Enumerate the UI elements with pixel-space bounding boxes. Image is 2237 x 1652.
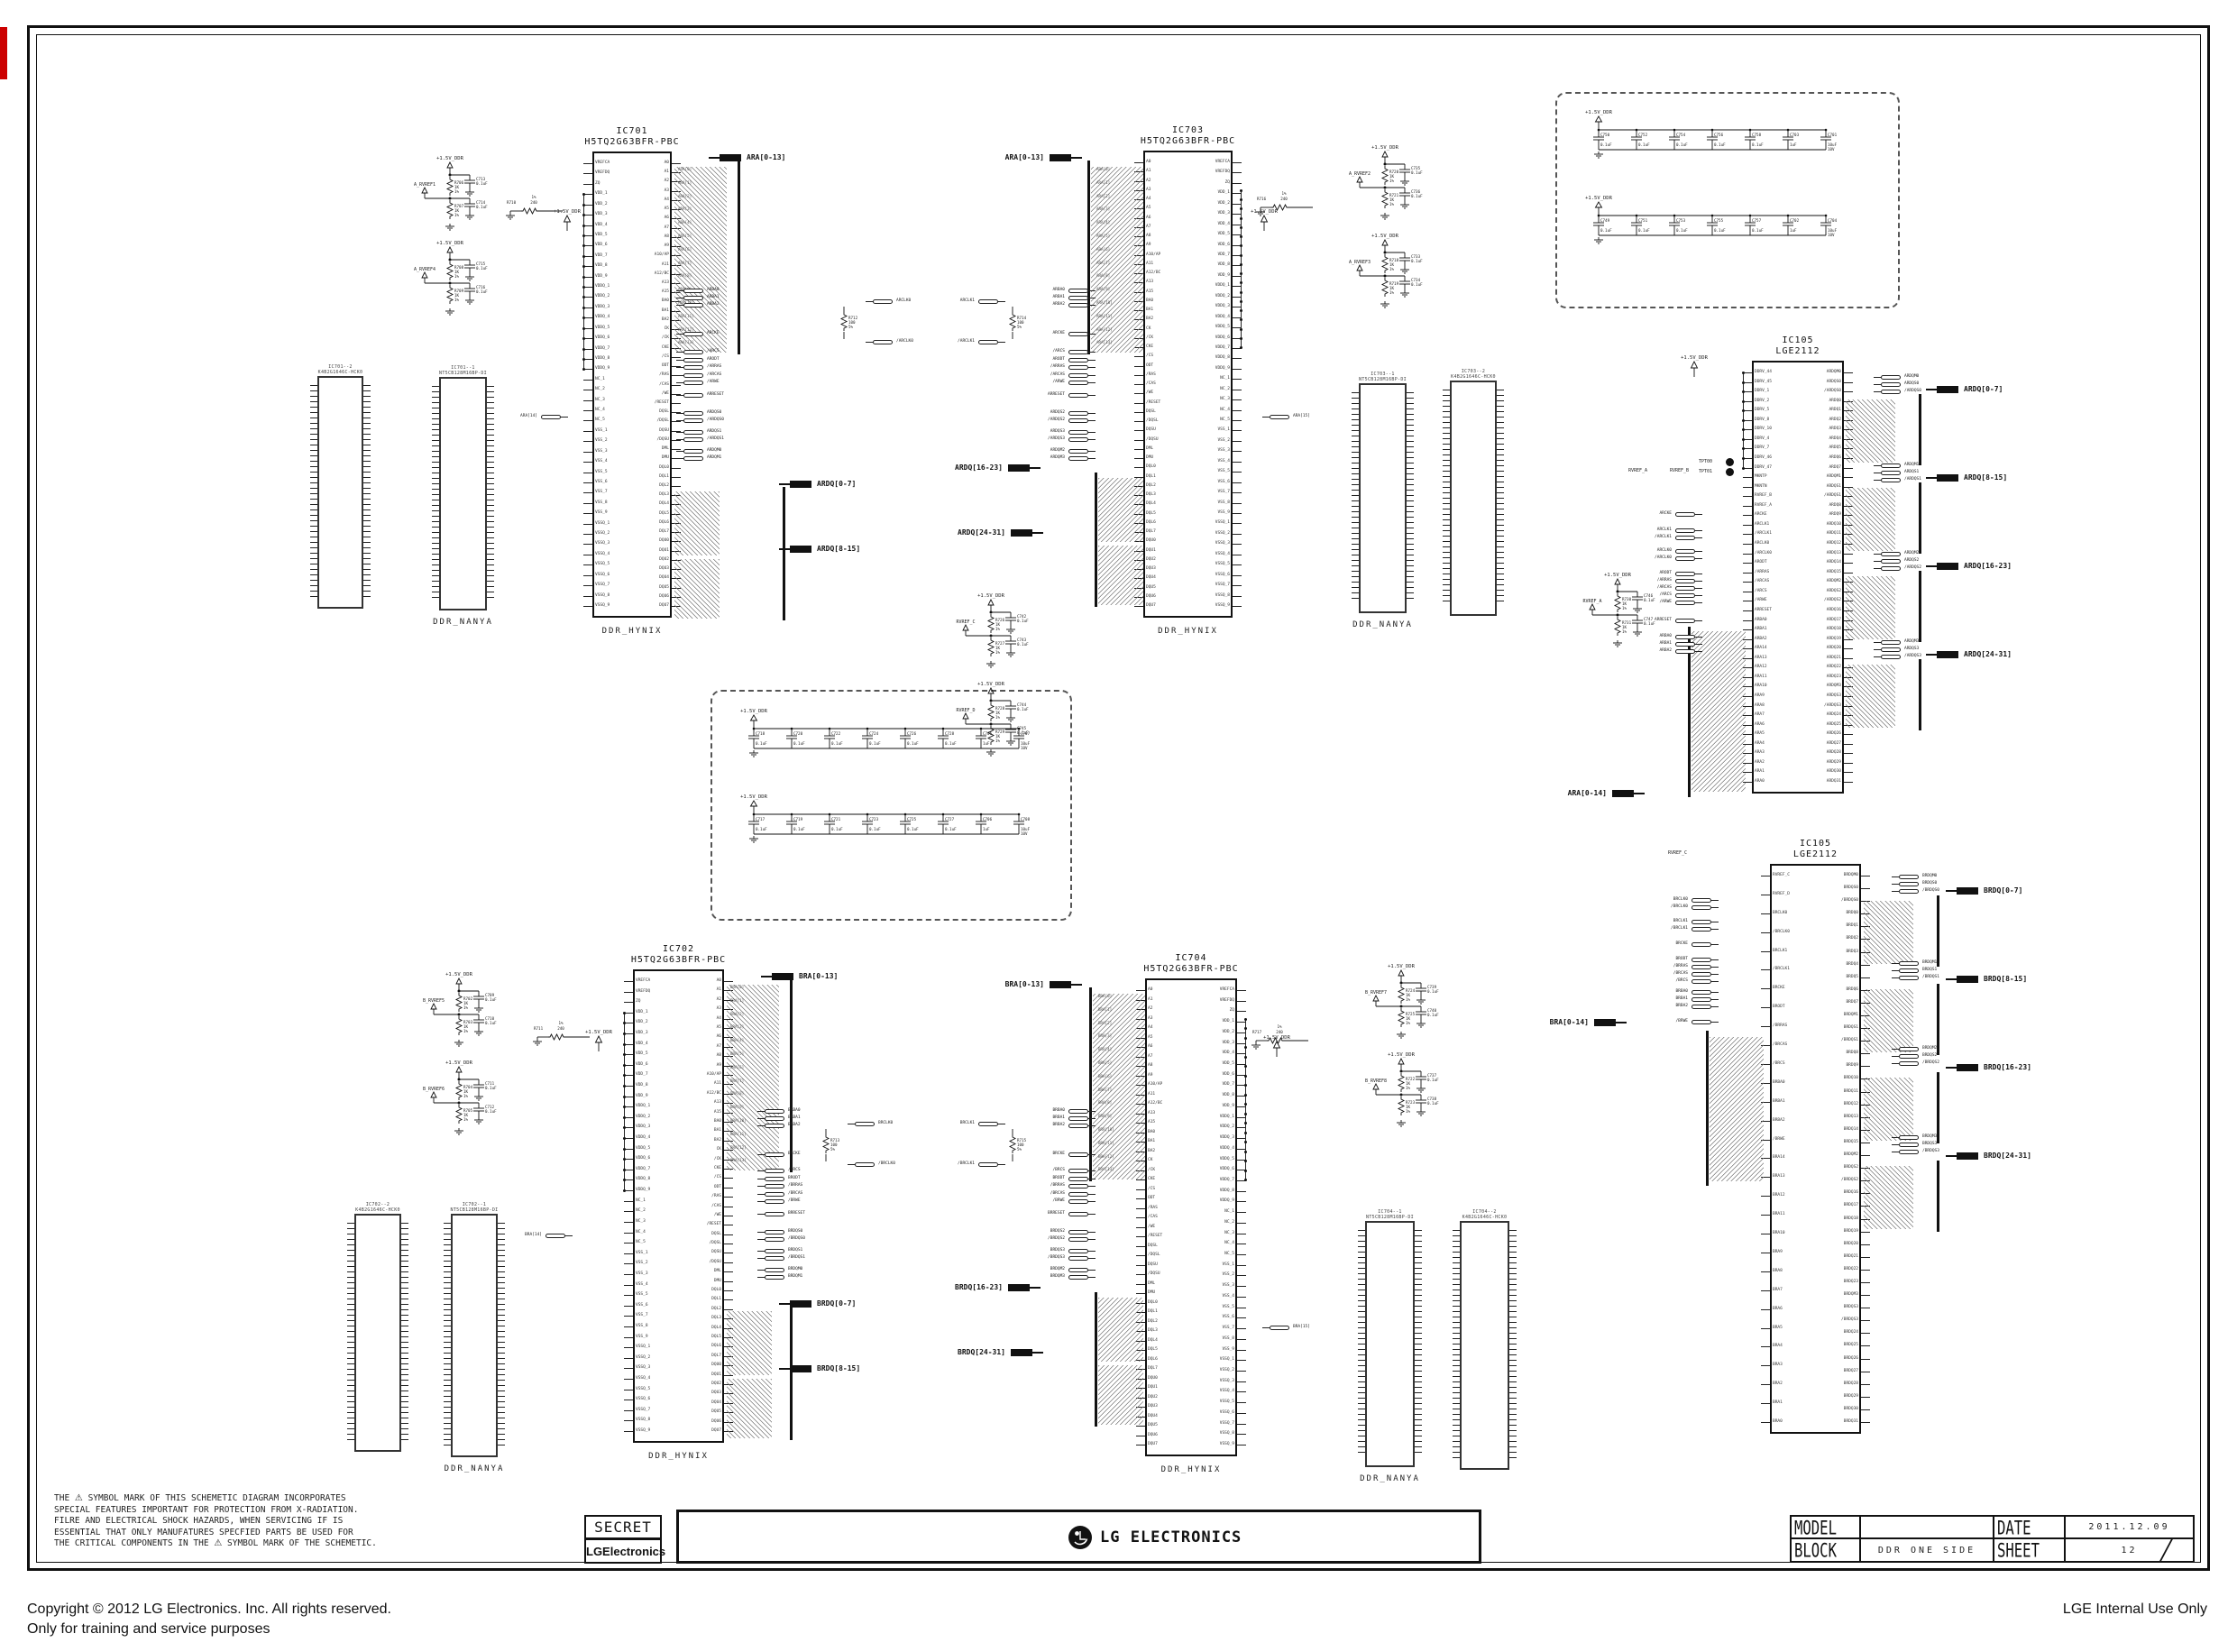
bus-tag xyxy=(1011,529,1032,537)
pin-stub xyxy=(363,439,371,440)
pin-stub xyxy=(1443,465,1450,466)
net-pill xyxy=(683,289,703,293)
pill-wire xyxy=(1695,620,1702,621)
pin-stub xyxy=(1415,1430,1422,1431)
pin-name: BRDQ7 xyxy=(1820,1001,1858,1005)
bus-tag xyxy=(720,154,741,161)
pin-stub xyxy=(624,1201,633,1202)
pin-name: BRDQ6 xyxy=(1820,988,1858,993)
pin-stub xyxy=(1443,390,1450,390)
pin-stub xyxy=(498,1326,505,1326)
bus-tag-label: ARDQ[24-31] xyxy=(1964,651,2012,658)
pin-name: VSS_1 xyxy=(636,1252,648,1256)
svg-text:0.1uF: 0.1uF xyxy=(476,205,488,209)
pin-name: BA0 xyxy=(1146,299,1153,304)
pin-stub xyxy=(583,596,592,597)
pin-stub xyxy=(1237,1328,1246,1329)
pin-name: DMU xyxy=(1146,456,1153,461)
pin-stub xyxy=(1358,1376,1365,1377)
junction-dot xyxy=(1742,419,1745,422)
pin-name: VSSQ_8 xyxy=(636,1418,650,1423)
pin-name: ARDQ16 xyxy=(1803,609,1841,613)
ic-ref-ic701: IC701 xyxy=(542,126,722,136)
pin-name: BRDQ23 xyxy=(1820,1280,1858,1285)
svg-text:0.1uF: 0.1uF xyxy=(1676,228,1688,233)
pin-stub xyxy=(401,1271,408,1272)
bus-tag-wire xyxy=(1946,978,1957,980)
pin-name: ARA8 xyxy=(1755,704,1765,709)
pin-name: NC_2 xyxy=(595,388,605,392)
pin-name: ZQ xyxy=(595,182,600,187)
bus-tag xyxy=(1011,1349,1032,1356)
pin-stub xyxy=(1136,1198,1145,1199)
pin-stub xyxy=(363,445,371,445)
pin-stub xyxy=(444,1336,451,1337)
net-pill xyxy=(683,303,703,307)
pin-stub xyxy=(363,531,371,532)
pin-name: ARA5 xyxy=(1755,732,1765,737)
pin-stub xyxy=(1415,1441,1422,1442)
net-pill xyxy=(1675,512,1695,517)
net-label: /ARDQS2 xyxy=(1009,418,1065,423)
pin-stub xyxy=(1443,449,1450,450)
pin-name: ARDQ6 xyxy=(1803,456,1841,461)
svg-text:C755: C755 xyxy=(1714,218,1724,223)
pin-stub xyxy=(1497,519,1504,520)
pin-stub xyxy=(1358,1425,1365,1426)
pin-name: /RESET xyxy=(683,1223,721,1227)
net-pill xyxy=(683,430,703,435)
pill-wire xyxy=(676,395,683,396)
pin-name: VDDQ_5 xyxy=(1196,1158,1234,1162)
pin-name: VSSQ_3 xyxy=(1192,542,1230,546)
fan-net-label: ARA[4] xyxy=(1096,221,1110,225)
pin-name: A5 xyxy=(1148,1036,1152,1041)
pin-stub xyxy=(487,500,494,500)
net-pill xyxy=(1881,471,1901,475)
small-ic-part: K4B2G1646C-HCK0 xyxy=(1419,374,1527,380)
svg-text:1%: 1% xyxy=(1281,191,1287,196)
pin-stub xyxy=(1407,441,1414,442)
pin-stub xyxy=(1761,1309,1770,1310)
svg-text:0.1uF: 0.1uF xyxy=(831,827,843,831)
pin-stub xyxy=(444,1277,451,1278)
pin-stub xyxy=(310,537,317,537)
net-pill xyxy=(1899,889,1919,894)
fan-net-label: BRA[13] xyxy=(730,1159,747,1162)
pin-stub xyxy=(1358,1235,1365,1236)
pin-name: ARA6 xyxy=(1755,723,1765,728)
junction-dot xyxy=(1240,263,1242,266)
pin-name: VDD_5 xyxy=(1192,233,1230,237)
pin-stub xyxy=(1509,1235,1517,1236)
pin-stub xyxy=(1509,1300,1517,1301)
pill-wire xyxy=(1088,1270,1096,1271)
pin-stub xyxy=(432,597,439,598)
pin-stub xyxy=(1497,514,1504,515)
pin-stub xyxy=(624,1222,633,1223)
pin-name: VSS_8 xyxy=(1196,1337,1234,1342)
junction-dot xyxy=(1244,1056,1247,1059)
pin-name: VDDQ_3 xyxy=(636,1125,650,1130)
bus-fan xyxy=(1846,488,1895,551)
pin-name: /ARDQS0 xyxy=(1803,390,1841,394)
pin-stub xyxy=(1453,1311,1460,1312)
pin-stub xyxy=(1761,1290,1770,1291)
net-pill xyxy=(1270,1326,1289,1330)
pin-stub xyxy=(432,532,439,533)
pin-name: BRBA1 xyxy=(1773,1100,1785,1105)
clock-term-res-R713: R713 100 5% xyxy=(819,1129,855,1169)
pin-stub xyxy=(444,1353,451,1354)
svg-text:1%: 1% xyxy=(531,195,536,199)
pin-name: VSS_8 xyxy=(595,501,608,506)
pin-stub xyxy=(1352,538,1359,539)
pin-stub xyxy=(498,1266,505,1267)
net-pill xyxy=(1675,586,1695,591)
pin-stub xyxy=(363,574,371,575)
pin-stub xyxy=(432,418,439,419)
pin-name: VDD_4 xyxy=(1192,223,1230,227)
pin-stub xyxy=(1415,1300,1422,1301)
junction-dot xyxy=(1240,346,1242,349)
bus-riser xyxy=(1919,394,1921,465)
pin-stub xyxy=(1861,1295,1870,1296)
fan-net-label: ARA[6] xyxy=(678,248,692,252)
fan-net-label: BRA[3] xyxy=(730,1025,744,1029)
bus-riser xyxy=(783,487,785,557)
pill-wire xyxy=(757,1251,765,1252)
svg-text:1%: 1% xyxy=(463,1029,469,1033)
net-label: /ARCLK0 xyxy=(1616,556,1672,561)
net-label: ARDQM2 xyxy=(1904,552,1919,556)
pin-stub xyxy=(1407,419,1414,420)
pill-wire xyxy=(848,1124,855,1124)
bus-riser xyxy=(1937,895,1939,967)
pill-wire xyxy=(757,1125,765,1126)
bus-tag-label: BRDQ[0-7] xyxy=(1984,887,2022,895)
pin-stub xyxy=(1352,500,1359,501)
pin-name: BRDQ22 xyxy=(1820,1268,1858,1272)
vref-divider-A_RVREF4: +1.5V_DDR C7150.1uF R708 1K 1% A_RVREF4 … xyxy=(410,238,493,330)
pin-stub xyxy=(1407,457,1414,458)
pin-stub xyxy=(487,429,494,430)
pin-name: DQSU xyxy=(1146,428,1156,433)
ic-ref-ic105b: IC105 xyxy=(1726,839,1906,849)
pin-stub xyxy=(1497,406,1504,407)
pin-name: BRDQ13 xyxy=(1820,1115,1858,1120)
net-pill xyxy=(1068,449,1088,454)
schematic-sheet: IC701H5TQ2G63BFR-PBCDDR_HYNIXVREFCAVREFD… xyxy=(0,0,2237,1652)
pin-name: VDDQ_6 xyxy=(636,1157,650,1161)
pin-stub xyxy=(1233,441,1242,442)
pin-stub xyxy=(1761,1346,1770,1347)
svg-text:C727: C727 xyxy=(945,817,955,821)
pin-stub xyxy=(347,1266,354,1267)
pin-stub xyxy=(1136,1436,1145,1436)
pin-stub xyxy=(444,1282,451,1283)
pin-name: VSS_9 xyxy=(636,1335,648,1340)
pin-stub xyxy=(1743,534,1752,535)
bus-tag xyxy=(1957,1152,1978,1160)
net-pill xyxy=(765,1256,784,1261)
secret-stamp: SECRET xyxy=(584,1515,662,1539)
pin-stub xyxy=(363,564,371,564)
pin-stub xyxy=(487,445,494,446)
svg-text:1%: 1% xyxy=(463,1117,469,1122)
pin-name: NC_1 xyxy=(1196,1210,1234,1215)
pin-name: MKNTP xyxy=(1755,475,1767,480)
pin-name: BRDQ20 xyxy=(1820,1243,1858,1247)
pin-stub xyxy=(347,1244,354,1245)
pin-name: A0 xyxy=(1146,161,1151,165)
net-pill xyxy=(683,358,703,363)
pin-name: BRDQS3 xyxy=(1820,1306,1858,1310)
net-label: ARBA2 xyxy=(707,303,720,307)
net-pill xyxy=(1675,556,1695,561)
pin-name: DQL6 xyxy=(631,521,669,526)
pin-stub xyxy=(444,1396,451,1397)
pin-stub xyxy=(1743,601,1752,601)
pin-name: DDRV_5 xyxy=(1755,408,1769,413)
pin-name: VDDQ_7 xyxy=(1192,346,1230,351)
pin-stub xyxy=(1861,1372,1870,1372)
pin-stub xyxy=(672,357,681,358)
svg-text:C719: C719 xyxy=(793,817,803,821)
pin-stub xyxy=(1407,576,1414,577)
svg-text:C708: C708 xyxy=(1021,817,1031,821)
pin-stub xyxy=(583,534,592,535)
pin-stub xyxy=(1358,1322,1365,1323)
pin-name: BRDQ3 xyxy=(1820,950,1858,955)
pin-stub xyxy=(1443,590,1450,591)
pin-stub xyxy=(1352,587,1359,588)
pin-stub xyxy=(1407,436,1414,436)
pin-stub xyxy=(1233,555,1242,555)
pin-name: /ARRAS xyxy=(1755,571,1769,575)
pin-name: BRA14 xyxy=(1773,1156,1785,1161)
pin-stub xyxy=(1453,1349,1460,1350)
pin-name: DQU6 xyxy=(631,595,669,600)
pin-stub xyxy=(347,1304,354,1305)
pin-name: VDD_9 xyxy=(1192,274,1230,279)
pin-stub xyxy=(1509,1419,1517,1420)
pin-stub xyxy=(1844,554,1853,555)
pin-stub xyxy=(1407,533,1414,534)
pin-name: VSSQ_4 xyxy=(636,1377,650,1381)
pin-name: CK xyxy=(1146,327,1151,332)
pin-stub xyxy=(1237,1212,1246,1213)
bus-riser xyxy=(1706,1031,1709,1186)
pin-name: VDD_9 xyxy=(595,275,608,280)
pill-wire xyxy=(757,1232,765,1233)
net-label: /BRCS xyxy=(1009,1169,1065,1173)
pin-stub xyxy=(1233,482,1242,483)
pin-stub xyxy=(498,1385,505,1386)
pin-stub xyxy=(1136,1426,1145,1427)
pill-wire xyxy=(1088,1277,1096,1278)
pin-stub xyxy=(1407,463,1414,463)
pin-name: /RAS xyxy=(1148,1207,1158,1211)
net-pill xyxy=(765,1177,784,1181)
pin-name: NC_1 xyxy=(1192,377,1230,381)
pin-stub xyxy=(624,1295,633,1296)
pin-stub xyxy=(1407,598,1414,599)
misc-label: TPT01 xyxy=(1699,470,1712,474)
net-label: ARBA0 xyxy=(1616,635,1672,639)
svg-text:+1.5V_DDR: +1.5V_DDR xyxy=(1371,145,1398,151)
pill-wire xyxy=(1088,1170,1096,1171)
small-ic-body-0 xyxy=(317,376,363,609)
svg-text:C723: C723 xyxy=(869,817,879,821)
junction-dot xyxy=(1742,372,1745,374)
pin-stub xyxy=(498,1418,505,1418)
pin-name: VSS_3 xyxy=(1196,1284,1234,1289)
pin-stub xyxy=(1443,595,1450,596)
pill-wire xyxy=(1892,1063,1899,1064)
pin-stub xyxy=(1237,1350,1246,1351)
net-pill xyxy=(1881,382,1901,387)
pin-name: CK xyxy=(683,1148,721,1152)
pin-name: VSS_9 xyxy=(1196,1348,1234,1353)
net-label: ARDQM1 xyxy=(1904,463,1919,468)
pin-name: VSSQ_6 xyxy=(1196,1411,1234,1416)
fan-net-label: ARA[6] xyxy=(1096,248,1110,252)
pin-name: ODT xyxy=(631,364,669,369)
fan-net-label: ARA[12] xyxy=(1096,328,1113,332)
pin-stub xyxy=(1443,498,1450,499)
pin-stub xyxy=(1844,744,1853,745)
fan-net-label: BRA[1] xyxy=(1098,1008,1112,1012)
net-label: /ARDQS3 xyxy=(1904,655,1921,659)
pin-stub xyxy=(498,1223,505,1224)
svg-text:1%: 1% xyxy=(454,189,460,194)
pin-name: CKE xyxy=(1148,1178,1155,1182)
pin-name: /WE xyxy=(683,1214,721,1218)
pin-name: BRDQ18 xyxy=(1820,1217,1858,1222)
pin-stub xyxy=(1407,528,1414,528)
pin-name: NC_5 xyxy=(1192,418,1230,423)
svg-text:0.1uF: 0.1uF xyxy=(485,997,497,1002)
pin-stub xyxy=(1407,403,1414,404)
pin-stub xyxy=(1237,1191,1246,1192)
pin-stub xyxy=(1509,1392,1517,1393)
svg-text:1%: 1% xyxy=(995,650,1001,655)
pin-stub xyxy=(1861,888,1870,889)
pin-name: /ARDQS2 xyxy=(1803,599,1841,603)
pin-stub xyxy=(724,1188,733,1189)
pin-name: /CAS xyxy=(1146,382,1156,387)
pin-stub xyxy=(1407,565,1414,566)
pin-stub xyxy=(1233,513,1242,514)
bus-fan xyxy=(1846,399,1895,463)
net-label: /ARDQS0 xyxy=(1904,390,1921,394)
pin-name: VDDQ_9 xyxy=(636,1189,650,1193)
pin-name: DQL4 xyxy=(631,502,669,507)
pin-stub xyxy=(487,554,494,555)
pin-stub xyxy=(1407,555,1414,555)
pin-stub xyxy=(1453,1436,1460,1436)
pin-stub xyxy=(1136,1217,1145,1218)
junction-dot xyxy=(582,286,585,289)
pin-stub xyxy=(1443,536,1450,537)
pin-name: ARDQS3 xyxy=(1803,694,1841,699)
pin-stub xyxy=(1497,460,1504,461)
pin-stub xyxy=(1352,555,1359,555)
pin-stub xyxy=(1453,1333,1460,1334)
pin-stub xyxy=(1136,1284,1145,1285)
pin-name: A15 xyxy=(1148,1121,1155,1125)
svg-text:1%: 1% xyxy=(454,213,460,217)
bus-tag-wire xyxy=(1032,532,1043,534)
pin-name: VDD_8 xyxy=(595,264,608,269)
small-ic-part: NT5CB128M16BP-DI xyxy=(409,371,518,376)
pin-stub xyxy=(487,462,494,463)
pin-stub xyxy=(1407,479,1414,480)
pin-name: DQU3 xyxy=(683,1391,721,1396)
pin-stub xyxy=(1861,1232,1870,1233)
pin-name: VDD_7 xyxy=(595,254,608,259)
net-label: BRRESET xyxy=(1009,1212,1065,1216)
pin-name: /DQSL xyxy=(1148,1253,1160,1258)
pin-stub xyxy=(363,515,371,516)
pin-stub xyxy=(498,1439,505,1440)
fan-net-label: ARA[0] xyxy=(1096,168,1110,171)
pin-name: DQU5 xyxy=(1148,1424,1158,1428)
pin-name: DDRV_46 xyxy=(1755,456,1772,461)
pin-stub xyxy=(1509,1425,1517,1426)
pin-name: VDDQ_1 xyxy=(636,1105,650,1109)
pin-stub xyxy=(432,570,439,571)
bus-riser xyxy=(738,161,740,354)
pin-name: /BRDQS0 xyxy=(1820,899,1858,904)
pin-stub xyxy=(1509,1398,1517,1399)
pin-name: BA2 xyxy=(683,1139,721,1143)
pin-name: ARA1 xyxy=(1755,770,1765,775)
net-label: /ARCAS xyxy=(1009,373,1065,378)
pill-wire xyxy=(1874,480,1881,481)
pin-stub xyxy=(498,1293,505,1294)
pin-name: A11 xyxy=(683,1082,721,1087)
pin-stub xyxy=(401,1315,408,1316)
pin-stub xyxy=(444,1271,451,1272)
pin-name: A13 xyxy=(631,281,669,286)
pill-wire xyxy=(757,1170,765,1171)
pin-stub xyxy=(1134,467,1143,468)
pin-stub xyxy=(363,407,371,408)
junction-dot xyxy=(1244,1132,1247,1134)
pin-name: ARCLK1 xyxy=(1755,523,1769,528)
pill-wire xyxy=(1088,298,1096,298)
net-label: /ARDQS2 xyxy=(1904,566,1921,571)
pin-name: NC_3 xyxy=(1196,1232,1234,1236)
pin-stub xyxy=(432,391,439,392)
net-label: BRDQS2 xyxy=(1922,1054,1937,1059)
net-label: /ARWE xyxy=(1009,381,1065,385)
pin-name: ARDQ22 xyxy=(1803,665,1841,670)
pin-stub xyxy=(444,1293,451,1294)
pin-name: NC_3 xyxy=(1192,398,1230,402)
pin-stub xyxy=(1407,408,1414,409)
pin-stub xyxy=(1509,1268,1517,1269)
pin-name: DQL7 xyxy=(683,1354,721,1359)
pin-stub xyxy=(432,505,439,506)
svg-text:+1.5V_DDR: +1.5V_DDR xyxy=(445,1060,472,1066)
net-label: /BRCAS xyxy=(1009,1192,1065,1197)
pin-stub xyxy=(1407,571,1414,572)
pin-stub xyxy=(401,1223,408,1224)
pin-stub xyxy=(1509,1409,1517,1409)
